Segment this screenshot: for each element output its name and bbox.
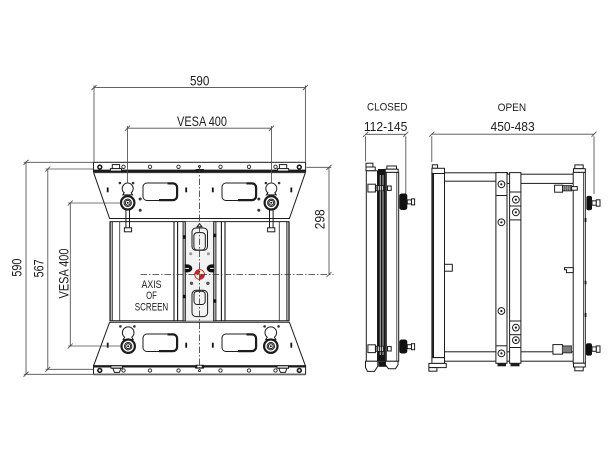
svg-text:OPEN: OPEN bbox=[498, 102, 527, 114]
svg-text:VESA 400: VESA 400 bbox=[56, 248, 72, 298]
svg-text:567: 567 bbox=[31, 259, 46, 277]
svg-text:298: 298 bbox=[312, 209, 327, 229]
svg-text:OF: OF bbox=[146, 290, 157, 302]
svg-text:590: 590 bbox=[190, 73, 210, 88]
svg-text:590: 590 bbox=[10, 258, 25, 276]
svg-text:450-483: 450-483 bbox=[491, 119, 535, 134]
svg-text:CLOSED: CLOSED bbox=[367, 102, 408, 114]
svg-text:SCREEN: SCREEN bbox=[135, 302, 168, 314]
svg-text:112-145: 112-145 bbox=[364, 119, 408, 134]
svg-text:VESA 400: VESA 400 bbox=[177, 113, 227, 129]
